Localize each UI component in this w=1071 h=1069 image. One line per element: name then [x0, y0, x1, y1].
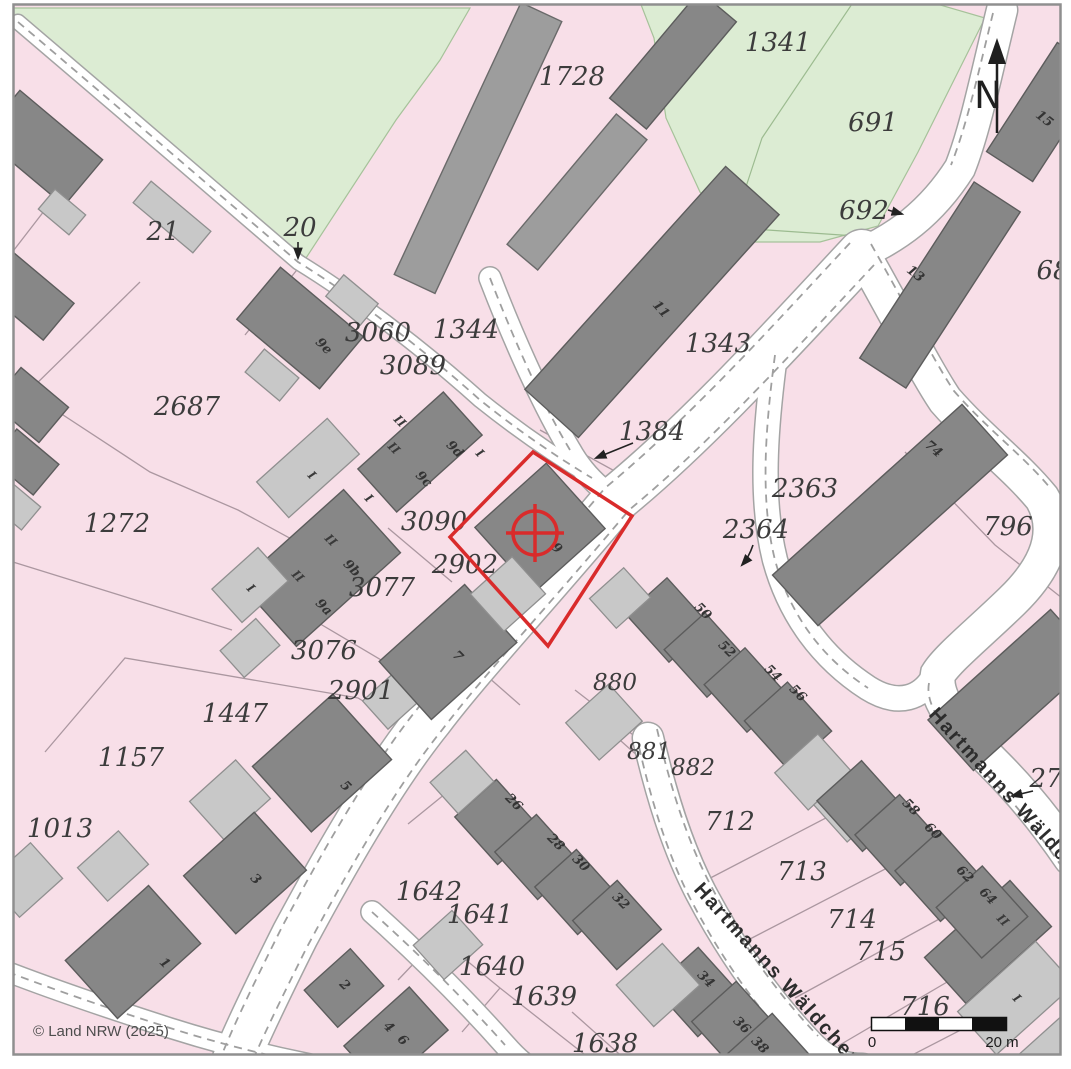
parcel-label: 3090 [401, 507, 467, 537]
parcel-label: 27 [1028, 764, 1063, 794]
parcel-label: 1639 [511, 982, 577, 1012]
cadastral-map[interactable]: 21 20 1728 1341 691 692 68 2687 3060 134… [0, 0, 1071, 1069]
parcel-label: 1728 [539, 62, 605, 92]
parcel-label: 691 [848, 108, 898, 138]
parcel-label: 1343 [685, 329, 751, 359]
parcel-label: 715 [856, 937, 906, 967]
parcel-label: 1157 [98, 743, 165, 773]
parcel-label: 712 [705, 807, 755, 837]
parcel-label: 2901 [327, 676, 394, 706]
scale-end-label: 20 m [985, 1034, 1018, 1051]
parcel-label: 20 [282, 213, 316, 243]
parcel-label: 1344 [433, 315, 499, 345]
north-label: N [974, 74, 1002, 117]
parcel-label: 3077 [349, 573, 416, 603]
parcel-label: 882 [671, 755, 715, 781]
parcel-label: 714 [827, 905, 877, 935]
parcel-label: 2364 [722, 515, 789, 545]
parcel-label: 692 [839, 196, 889, 226]
parcel-label: 1641 [447, 900, 513, 930]
cadastral-map-viewport[interactable]: 21 20 1728 1341 691 692 68 2687 3060 134… [0, 0, 1071, 1069]
copyright-notice: © Land NRW (2025) [33, 1023, 169, 1040]
parcel-label: 796 [983, 512, 1033, 542]
parcel-label: 3076 [291, 636, 357, 666]
parcel-label: 1384 [619, 417, 685, 447]
parcel-label: 1640 [459, 952, 525, 982]
parcel-label: 880 [593, 670, 637, 696]
parcel-label: 1447 [202, 699, 269, 729]
parcel-label: 713 [777, 857, 827, 887]
parcel-label: 21 [145, 217, 179, 247]
scale-zero-label: 0 [868, 1034, 876, 1051]
parcel-label: 3089 [380, 351, 446, 381]
parcel-label: 1013 [27, 814, 93, 844]
parcel-label: 2687 [153, 392, 221, 422]
parcel-label: 881 [627, 739, 671, 765]
parcel-label: 3060 [345, 318, 411, 348]
parcel-label: 2363 [771, 474, 838, 504]
parcel-label: 1341 [745, 28, 811, 58]
parcel-label: 1272 [84, 509, 150, 539]
